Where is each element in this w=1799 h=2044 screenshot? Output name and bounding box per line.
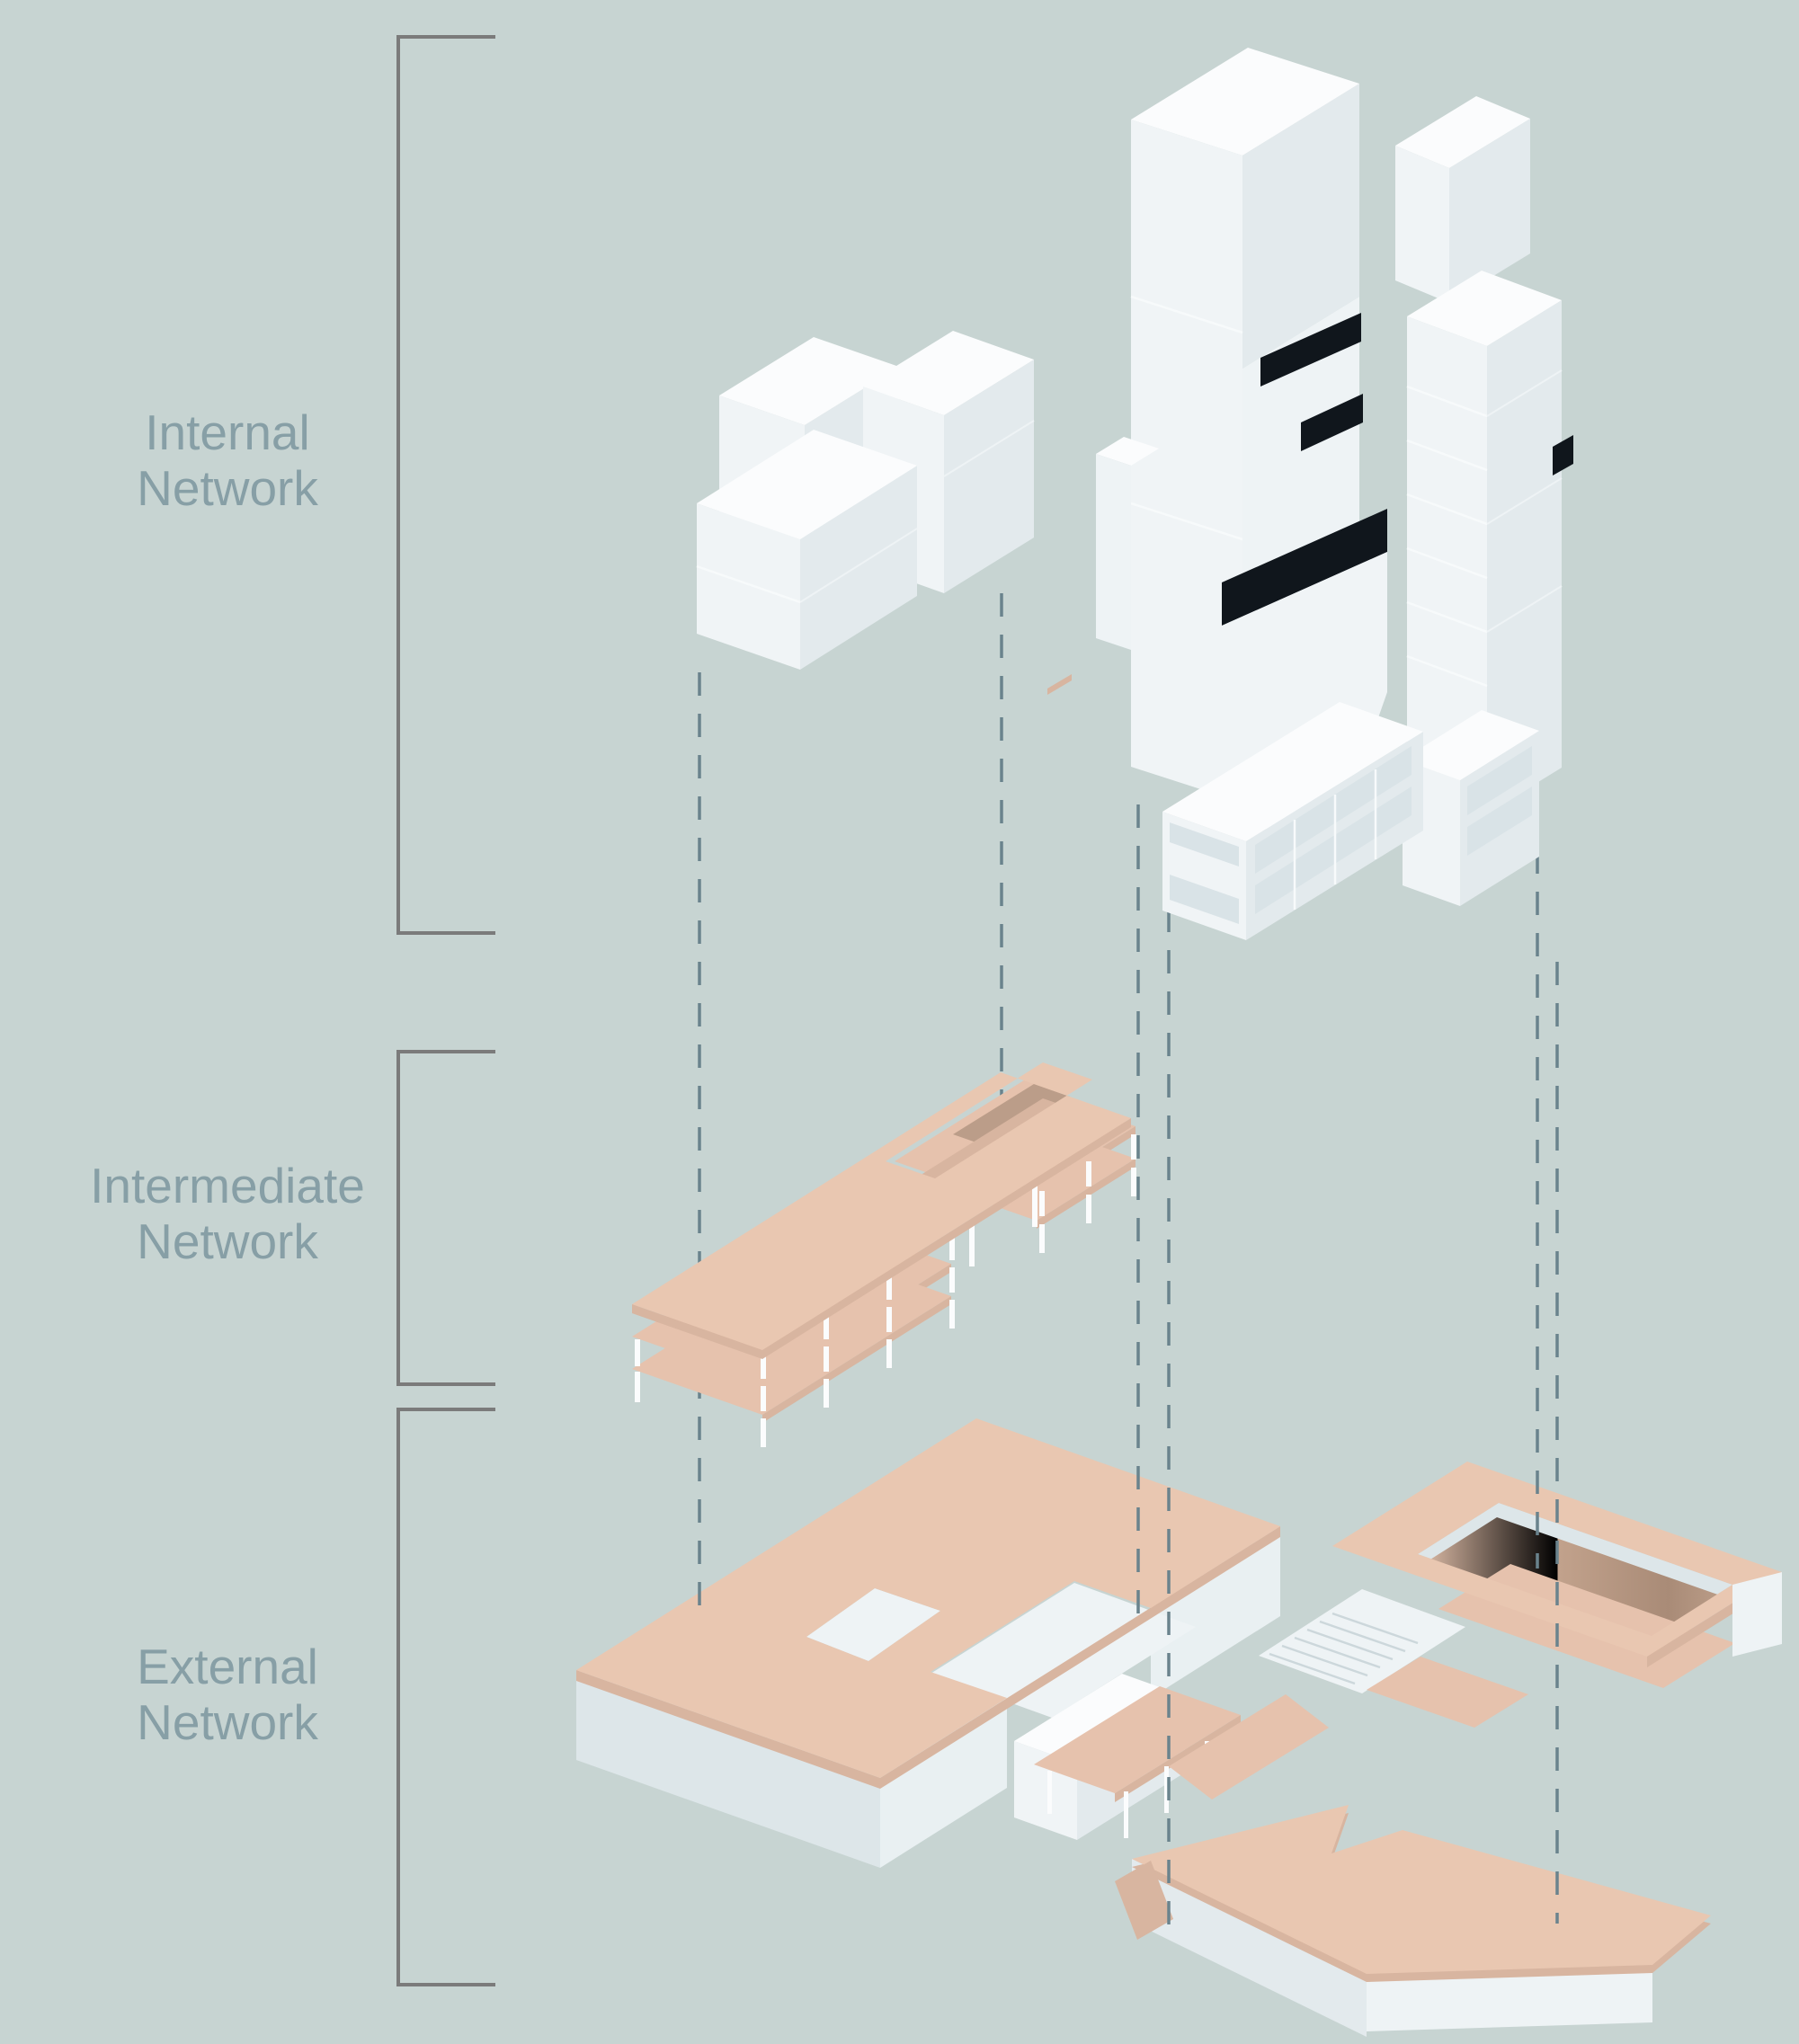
label-line: Network (66, 1213, 389, 1269)
bracket-internal (396, 35, 495, 935)
internal-left-cluster (697, 331, 1072, 695)
internal-network-model (697, 48, 1573, 940)
intermediate-network-model (632, 1062, 1136, 1447)
external-bottom-plate (1115, 1805, 1711, 2037)
label-intermediate-network: Intermediate Network (66, 1158, 389, 1269)
label-line: Intermediate (66, 1158, 389, 1213)
label-line: External (66, 1639, 389, 1694)
label-external-network: External Network (66, 1639, 389, 1750)
bracket-external (396, 1408, 495, 1986)
bracket-intermediate (396, 1050, 495, 1386)
external-network-model (576, 1418, 1782, 2037)
diagram-canvas: Internal Network Intermediate Network Ex… (0, 0, 1799, 2044)
label-line: Internal (66, 404, 389, 460)
right-wing-fascia (1732, 1572, 1782, 1657)
label-line: Network (66, 460, 389, 516)
label-line: Network (66, 1694, 389, 1750)
label-internal-network: Internal Network (66, 404, 389, 516)
cluster-pink-sliver (1047, 674, 1072, 695)
